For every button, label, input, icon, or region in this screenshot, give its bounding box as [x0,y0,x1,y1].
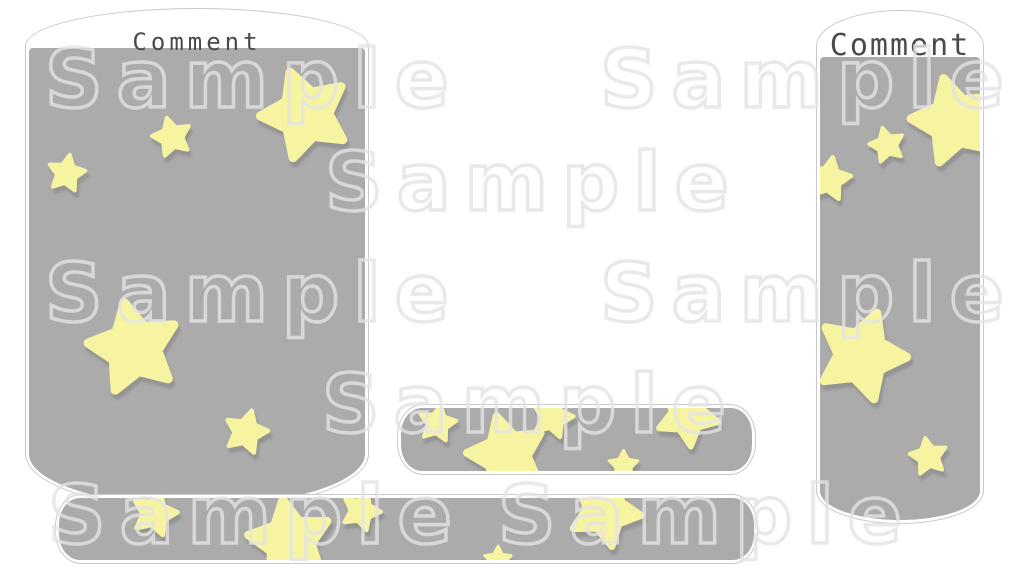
star-ribbon-bottom [55,494,758,564]
star-ribbon-middle [397,404,756,475]
comment-label-tall: Comment [817,28,983,63]
star-icon [641,408,734,462]
star-icon [900,428,957,485]
star-icon [142,107,202,167]
star-icon [477,539,519,560]
star-icon [889,57,980,187]
star-icon [65,279,203,417]
star-icon [820,146,862,212]
comment-frame-tall-body [820,57,980,520]
illustration-canvas: Comment Comment SampleSampleSampleSample… [0,0,1024,576]
star-icon [447,408,567,471]
comment-frame-large: Comment [25,8,369,510]
sample-watermark: Sample [325,137,743,229]
star-icon [601,443,646,472]
comment-frame-tall: Comment [816,10,984,524]
star-icon [331,498,391,541]
comment-label-large: Comment [26,28,368,56]
star-icon [120,498,189,548]
star-icon [551,498,659,560]
star-ribbon-middle-body [401,408,752,471]
star-ribbon-bottom-body [59,498,754,560]
star-icon [213,399,279,465]
comment-frame-large-body [29,48,365,506]
star-icon [238,48,366,182]
star-icon [820,288,929,423]
star-icon [38,145,95,202]
